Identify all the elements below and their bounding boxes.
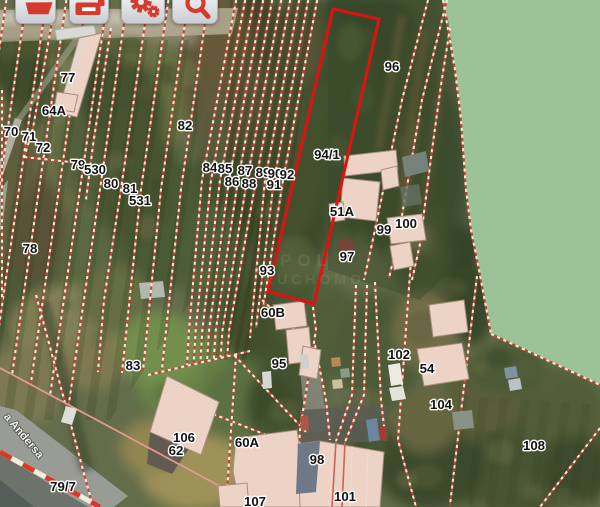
svg-text:54: 54 [420, 361, 435, 376]
svg-text:88: 88 [242, 176, 257, 191]
svg-text:83: 83 [126, 358, 141, 373]
svg-text:80: 80 [104, 176, 119, 191]
svg-text:60A: 60A [235, 435, 260, 450]
svg-text:102: 102 [388, 347, 410, 362]
svg-text:99: 99 [377, 222, 392, 237]
svg-text:70: 70 [4, 124, 19, 139]
svg-text:100: 100 [395, 216, 417, 231]
svg-text:91: 91 [267, 177, 282, 192]
svg-text:51A: 51A [330, 204, 355, 219]
svg-text:104: 104 [430, 397, 453, 412]
svg-text:84: 84 [203, 160, 218, 175]
svg-text:72: 72 [36, 140, 51, 155]
svg-text:78: 78 [23, 241, 38, 256]
svg-text:77: 77 [61, 70, 76, 85]
svg-text:60B: 60B [261, 305, 285, 320]
svg-text:107: 107 [244, 494, 266, 507]
svg-text:79/7: 79/7 [50, 479, 76, 494]
svg-text:101: 101 [334, 489, 356, 504]
svg-text:530: 530 [84, 162, 106, 177]
svg-text:92: 92 [280, 167, 295, 182]
svg-text:96: 96 [385, 59, 400, 74]
svg-text:64A: 64A [42, 103, 67, 118]
svg-text:108: 108 [523, 438, 545, 453]
svg-text:97: 97 [340, 249, 355, 264]
svg-text:95: 95 [272, 356, 287, 371]
svg-text:82: 82 [178, 118, 193, 133]
svg-text:POL: POL [280, 251, 333, 270]
svg-text:62: 62 [169, 443, 184, 458]
svg-text:93: 93 [260, 263, 275, 278]
svg-text:98: 98 [310, 452, 325, 467]
svg-text:94/1: 94/1 [314, 147, 340, 162]
svg-text:RUCHOMO: RUCHOMO [263, 271, 365, 287]
svg-text:71: 71 [22, 129, 37, 144]
svg-text:531: 531 [129, 193, 151, 208]
